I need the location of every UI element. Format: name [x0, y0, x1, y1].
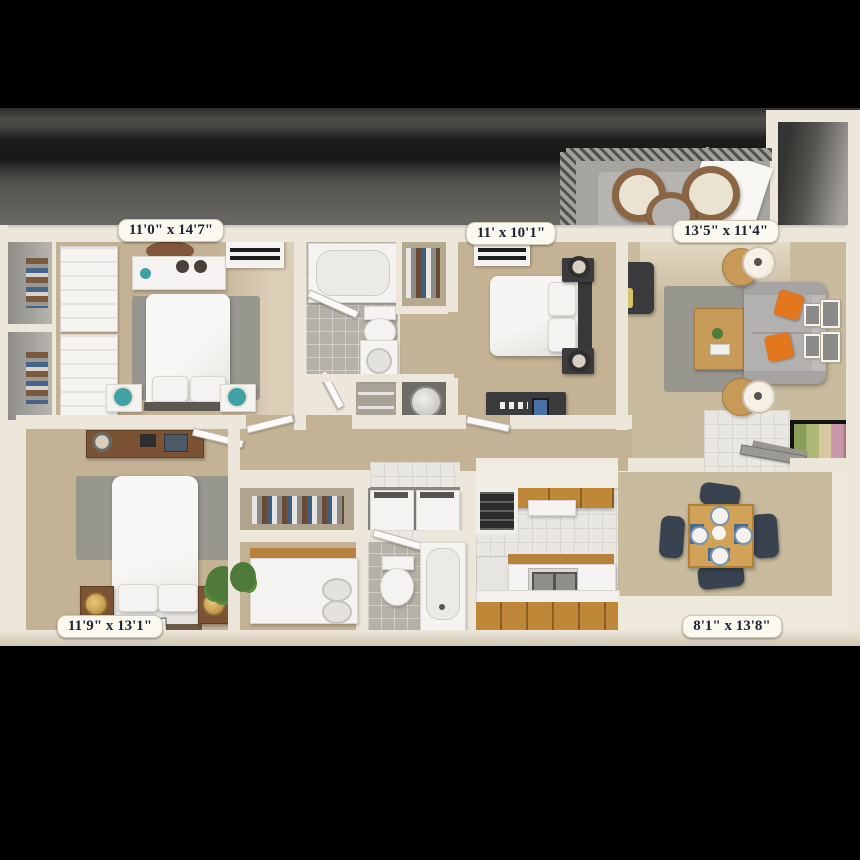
ceiling-window-blinds [226, 240, 284, 268]
linen-shelf [358, 392, 394, 395]
kitchen-drawer-fronts [508, 554, 614, 564]
wall-exterior-right [846, 225, 860, 645]
wall [616, 240, 628, 430]
tray [710, 344, 730, 355]
wall-closet-divider [0, 324, 52, 332]
lamp-finial [754, 392, 762, 400]
coffee-table [694, 308, 744, 370]
hanging-clothes [406, 248, 440, 298]
lamp [568, 350, 590, 372]
floorplan-render: 11'0" x 14'7" 11' x 10'1" 13'5" x 11'4" … [0, 0, 860, 860]
lamp-teal [226, 386, 248, 408]
pillow [118, 584, 158, 612]
desk-lamp [92, 432, 112, 452]
hall-tile-vestibule [370, 462, 460, 487]
decor-item [500, 402, 528, 409]
wall-art-frame [804, 334, 821, 358]
bottom-letterbox [0, 646, 860, 860]
dimension-label-living-room: 13'5" x 11'4" [673, 220, 779, 243]
vanity-backsplash [250, 548, 356, 558]
dimension-label-bedroom-1: 11'0" x 14'7" [118, 219, 224, 242]
dining-wall-face-right [832, 472, 846, 632]
wall [294, 240, 306, 430]
plate [710, 506, 730, 526]
storage-closet-interior [778, 122, 848, 226]
decor-item [176, 260, 189, 273]
throw-pillow-orange [764, 332, 795, 363]
sink-bowl [366, 348, 392, 374]
dimension-label-bedroom-2: 11' x 10'1" [466, 222, 556, 245]
wall-art-frame [804, 304, 821, 326]
stove [476, 488, 518, 534]
dryer-controls [420, 492, 454, 498]
desk-item [164, 434, 188, 452]
plate [710, 546, 730, 566]
dining-chair [659, 515, 686, 559]
pillow [548, 282, 576, 316]
pillow [158, 584, 198, 612]
wall-exterior-left [0, 225, 8, 645]
dimension-label-kitchen-dining: 8'1" x 13'8" [682, 615, 782, 638]
kitchen-soffit [476, 458, 618, 490]
water-heater [410, 386, 442, 418]
bathtub-basin [316, 250, 390, 296]
dining-chair [750, 513, 779, 559]
centerpiece-flowers [712, 526, 726, 540]
lamp-gold [84, 592, 108, 616]
balcony-railing-top [566, 148, 772, 161]
closet-bifold-doors [60, 246, 118, 332]
potted-plant [230, 562, 256, 592]
wall-hall-closet-header [228, 470, 370, 488]
plate [690, 526, 709, 545]
bedroom-2-entry-nook [400, 310, 458, 378]
desk-item [140, 434, 156, 447]
range-hood [528, 500, 576, 516]
linen-shelf [358, 406, 394, 409]
dimension-label-bedroom-3: 11'9" x 13'1" [57, 615, 163, 638]
doorway [306, 415, 352, 429]
toilet-bowl [380, 568, 414, 606]
wall-below-closets [228, 530, 468, 542]
hanging-clothes [26, 352, 48, 404]
pillow [152, 376, 188, 402]
entry-tile [704, 410, 790, 472]
lamp-teal [112, 386, 134, 408]
washer-controls [374, 492, 408, 498]
sink-bowl [322, 600, 352, 624]
plant-small [712, 328, 723, 339]
hanging-clothes [26, 258, 48, 308]
wall [448, 240, 458, 312]
top-letterbox [0, 0, 860, 108]
lamp-finial [754, 258, 762, 266]
wall [354, 471, 368, 533]
wall [302, 374, 454, 382]
wall-living-dining [628, 458, 704, 472]
breakfast-bar-panels [476, 602, 618, 632]
decor-vase [140, 268, 151, 279]
pillow [548, 318, 576, 352]
wall-art-frame [821, 332, 840, 362]
tub-drain [439, 604, 445, 610]
decor-item [194, 260, 207, 273]
sink-bowl [322, 578, 352, 602]
wall [396, 306, 448, 314]
plate [734, 526, 753, 545]
lamp [568, 256, 590, 278]
wall-art-frame [821, 300, 840, 328]
wall [396, 238, 402, 308]
wall-exterior-left-lower [8, 429, 26, 632]
hanging-clothes [252, 496, 344, 524]
